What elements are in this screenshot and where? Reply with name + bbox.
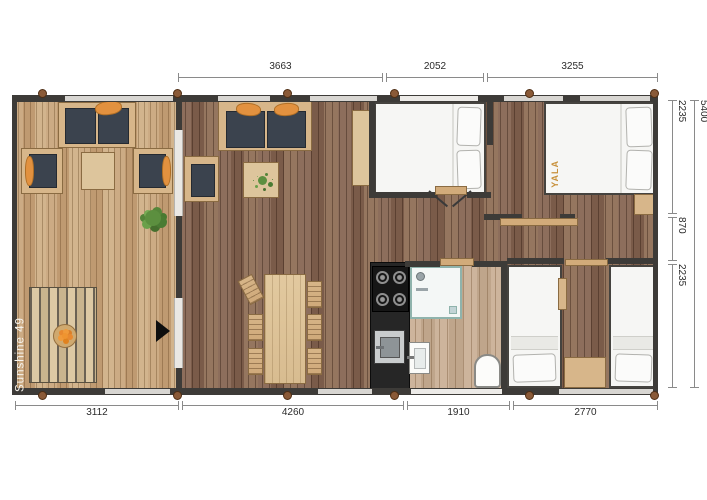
table-plant <box>258 176 267 185</box>
dim-right-1: 2235 <box>668 100 677 214</box>
bed-single-left <box>507 265 562 388</box>
shower-faucet-icon <box>416 288 428 291</box>
dim-right-total: 5400 <box>690 100 699 388</box>
fruit <box>62 333 68 339</box>
stove <box>372 266 409 312</box>
deck-coffee-table <box>81 152 115 190</box>
dim-bottom-4: 2770 <box>513 401 658 410</box>
picnic-table <box>29 287 97 383</box>
toilet <box>474 354 501 388</box>
window <box>310 96 377 101</box>
dim-bottom-2: 4260 <box>182 401 404 410</box>
door-lintel <box>435 186 467 195</box>
kitchen-sink <box>374 330 405 364</box>
sofa-cushion <box>226 111 265 148</box>
armchair-cushion <box>191 164 215 197</box>
wall-shelf <box>558 278 567 310</box>
deck-sofa <box>58 102 136 148</box>
window <box>65 96 173 101</box>
wall-post <box>283 89 292 98</box>
window <box>559 389 653 394</box>
deck-plant <box>145 210 161 226</box>
stove-burner <box>393 271 406 284</box>
dim-label: 4260 <box>182 407 404 418</box>
bed-double-1 <box>374 102 486 194</box>
bed-pillow <box>625 150 652 191</box>
dim-bottom-3: 1910 <box>407 401 510 410</box>
dining-chair <box>248 348 263 375</box>
wall-bedroom1-bottom <box>467 192 491 198</box>
dim-label: 5400 <box>698 100 707 388</box>
deck-armchair-right <box>133 148 173 194</box>
dining-chair <box>307 314 322 341</box>
dining-chair <box>307 348 322 375</box>
entrance-arrow-icon <box>156 320 170 342</box>
dim-label: 1910 <box>407 407 510 418</box>
window <box>318 389 372 394</box>
wall-post <box>38 89 47 98</box>
bed-double-2: YALA <box>544 102 657 195</box>
dining-chair <box>248 314 263 341</box>
orange-pillow <box>25 156 34 186</box>
bed-single-right <box>609 265 658 388</box>
yala-brand-label: YALA <box>550 160 560 188</box>
window <box>580 96 650 101</box>
window <box>218 96 270 101</box>
sliding-door <box>174 130 183 216</box>
dim-label: 3255 <box>487 61 658 72</box>
shower-head-icon <box>416 272 425 281</box>
window <box>411 389 502 394</box>
sofa-cushion <box>65 108 96 144</box>
dim-label: 2235 <box>676 100 687 214</box>
wall-bathroom-top <box>405 261 440 267</box>
dim-label: 2770 <box>513 407 658 418</box>
bed-blanket <box>613 336 654 350</box>
wall-post <box>650 391 659 400</box>
wall-post <box>390 89 399 98</box>
living-coffee-table <box>243 162 279 198</box>
living-sofa <box>218 101 312 151</box>
dining-chair <box>307 281 322 308</box>
window <box>504 96 563 101</box>
bed-pillow <box>456 150 481 190</box>
washbasin <box>409 342 430 374</box>
wall-post <box>525 89 534 98</box>
dining-table <box>264 274 306 384</box>
model-name-label: Sunshine 49 <box>13 260 28 392</box>
basin-faucet-icon <box>407 356 414 359</box>
duvet-fold <box>452 104 454 192</box>
wall-right <box>653 95 658 395</box>
bed-pillow <box>615 353 653 382</box>
stove-burner <box>376 271 389 284</box>
stove-burner <box>376 293 389 306</box>
basin <box>414 348 426 369</box>
wall-bedroom1-left <box>369 97 375 198</box>
wall-singleroom-top <box>507 258 564 264</box>
door-sill <box>565 259 608 266</box>
bed-pillow <box>456 107 481 147</box>
dim-top-2: 2052 <box>386 73 484 82</box>
deck-armchair-left <box>21 148 63 194</box>
wall-post <box>173 89 182 98</box>
dim-top-3: 3255 <box>487 73 658 82</box>
bedside-cabinet <box>564 357 606 388</box>
shower <box>410 266 462 319</box>
dim-right-3: 2235 <box>668 264 677 388</box>
dim-top-1: 3663 <box>178 73 383 82</box>
dim-bottom-1: 3112 <box>15 401 179 410</box>
dim-label: 870 <box>676 217 687 261</box>
sliding-door <box>174 298 183 368</box>
dim-label: 2235 <box>676 264 687 388</box>
wall-post <box>525 391 534 400</box>
dim-label: 3663 <box>178 61 383 72</box>
door-sill <box>440 258 474 266</box>
wall-bedroom1-bottom <box>369 192 437 198</box>
wall-post <box>283 391 292 400</box>
wall-post <box>173 391 182 400</box>
fruit-bowl <box>53 324 77 348</box>
dim-label: 3112 <box>15 407 179 418</box>
wall-post <box>390 391 399 400</box>
wall-post <box>650 89 659 98</box>
wall-bathroom-right <box>501 261 507 394</box>
wall-singleroom-top <box>606 258 658 264</box>
bed-pillow <box>625 107 652 148</box>
dim-label: 2052 <box>386 61 484 72</box>
sofa-cushion <box>267 111 306 148</box>
living-armchair <box>184 156 219 202</box>
dim-right-2: 870 <box>668 217 677 261</box>
wall-bedroom2-left <box>487 97 493 145</box>
window <box>105 389 170 394</box>
duvet-fold <box>620 104 622 193</box>
stove-burner <box>393 293 406 306</box>
orange-pillow <box>162 156 171 186</box>
door-sill <box>500 218 578 226</box>
shower-drain-icon <box>449 306 457 314</box>
bed-pillow <box>513 353 557 382</box>
floor-plan: YALA <box>0 0 707 500</box>
window <box>400 96 478 101</box>
wall-post <box>38 391 47 400</box>
sink-faucet-icon <box>376 346 384 349</box>
bed-blanket <box>511 336 558 350</box>
